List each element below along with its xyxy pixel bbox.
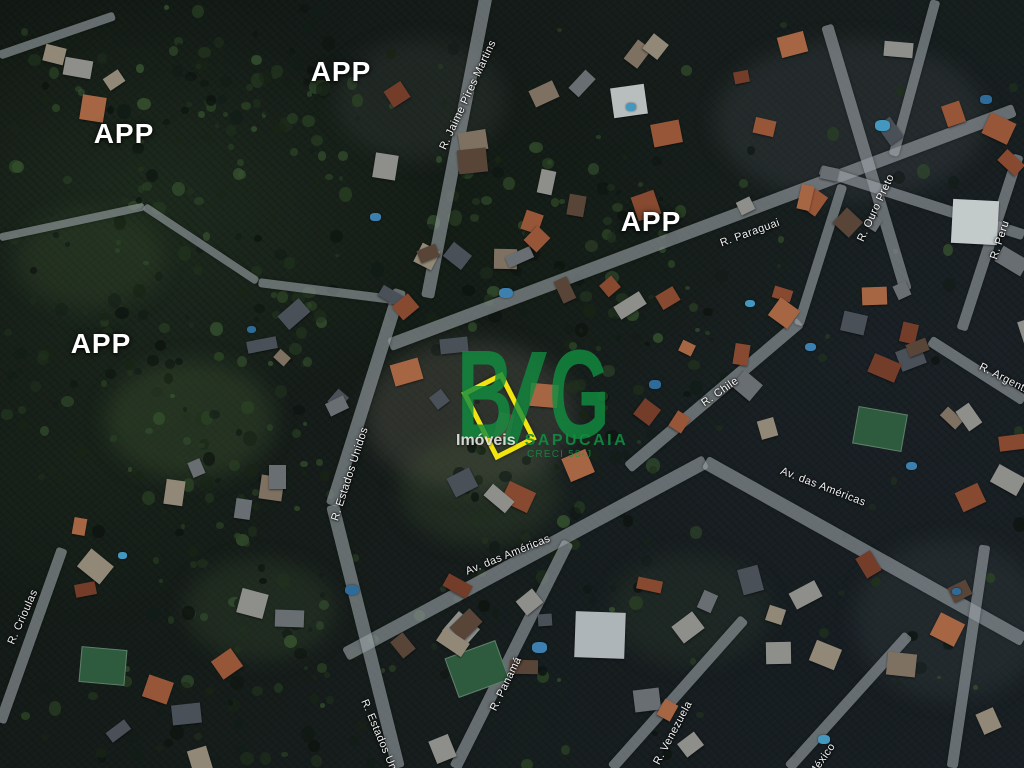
tree-decor (440, 670, 449, 679)
pool-decor (345, 585, 359, 595)
tree-decor (299, 4, 310, 13)
tree-decor (371, 262, 384, 276)
tree-decor (39, 682, 52, 694)
house-decor (372, 153, 399, 181)
tree-decor (200, 476, 213, 489)
tree-decor (631, 333, 641, 341)
area-label-app: APP (94, 118, 155, 150)
tree-decor (50, 467, 59, 474)
tree-decor (304, 666, 309, 670)
tree-decor (186, 76, 192, 81)
tree-decor (272, 123, 286, 136)
tree-decor (137, 98, 151, 110)
tree-decor (300, 461, 307, 467)
tree-decor (164, 739, 173, 747)
house-decor (439, 336, 468, 354)
tree-decor (155, 272, 163, 281)
tree-decor (436, 156, 443, 163)
tree-decor (254, 317, 259, 323)
pool-decor (980, 95, 992, 104)
court-decor (79, 646, 128, 686)
house-decor (997, 149, 1024, 176)
tree-decor (284, 56, 290, 61)
tree-decor (641, 555, 651, 567)
tree-decor (710, 338, 714, 341)
pool-decor (906, 462, 917, 470)
tree-decor (688, 360, 700, 370)
tree-decor (30, 298, 37, 304)
tree-decor (335, 254, 339, 258)
tree-decor (75, 86, 82, 92)
house-decor (809, 640, 842, 670)
tree-decor (609, 451, 622, 465)
house-decor (998, 433, 1024, 452)
tree-decor (313, 675, 317, 679)
tree-decor (159, 579, 163, 584)
tree-decor (240, 752, 254, 766)
tree-decor (780, 22, 787, 28)
tree-decor (644, 539, 650, 545)
tree-decor (338, 151, 349, 161)
tree-decor (274, 683, 283, 693)
tree-decor (605, 354, 610, 358)
tree-decor (575, 379, 585, 390)
tree-decor (281, 752, 287, 757)
tree-decor (322, 36, 335, 51)
tree-decor (156, 745, 163, 751)
tree-decor (138, 185, 145, 193)
tree-decor (170, 725, 184, 740)
tree-decor (244, 540, 250, 547)
tree-decor (339, 176, 343, 181)
tree-decor (234, 719, 243, 729)
tree-decor (230, 676, 244, 690)
tree-decor (210, 322, 223, 336)
tree-decor (12, 161, 24, 173)
house-decor (632, 687, 661, 712)
tree-decor (200, 80, 208, 87)
tree-decor (356, 721, 366, 730)
tree-decor (838, 590, 845, 597)
tree-decor (215, 478, 221, 483)
tree-decor (690, 381, 703, 395)
tree-decor (38, 474, 45, 480)
tree-decor (588, 163, 599, 175)
tree-decor (61, 396, 74, 407)
tree-decor (198, 47, 210, 58)
tree-decor (240, 626, 246, 632)
tree-decor (181, 524, 185, 529)
house-decor (443, 241, 472, 269)
tree-decor (777, 264, 781, 268)
tree-decor (169, 46, 178, 55)
tree-decor (318, 151, 326, 161)
tree-decor (557, 692, 562, 696)
tree-decor (30, 381, 41, 392)
tree-decor (747, 146, 755, 155)
tree-decor (311, 135, 323, 146)
tree-decor (284, 635, 297, 648)
tree-decor (115, 307, 129, 319)
pool-decor (875, 120, 890, 131)
house-decor (1017, 315, 1024, 344)
tree-decor (289, 343, 302, 355)
tree-decor (652, 156, 662, 165)
tree-decor (468, 322, 477, 332)
tree-decor (97, 53, 107, 64)
tree-decor (277, 291, 289, 302)
tree-decor (133, 284, 145, 298)
tree-decor (179, 682, 190, 691)
tree-decor (216, 188, 225, 199)
tree-decor (42, 82, 49, 90)
tree-decor (238, 288, 248, 298)
tree-decor (294, 506, 299, 512)
house-decor (529, 80, 560, 107)
tree-decor (4, 329, 12, 337)
tree-decor (128, 467, 133, 472)
pool-decor (626, 103, 636, 111)
tree-decor (681, 65, 692, 75)
tree-decor (214, 37, 224, 48)
tree-decor (241, 401, 255, 414)
house-decor (955, 483, 987, 513)
tree-decor (564, 324, 574, 334)
house-decor (677, 731, 704, 757)
tree-decor (366, 758, 376, 768)
tree-decor (49, 701, 61, 715)
tree-decor (308, 627, 313, 632)
tree-decor (589, 597, 597, 604)
tree-decor (187, 188, 194, 195)
tree-decor (14, 348, 27, 359)
tree-decor (170, 114, 179, 123)
tree-decor (869, 504, 876, 510)
tree-decor (431, 643, 438, 651)
tree-decor (275, 385, 287, 398)
tree-decor (559, 199, 565, 204)
tree-decor (117, 104, 131, 119)
tree-decor (825, 334, 830, 339)
tree-decor (136, 64, 143, 73)
tree-decor (52, 401, 57, 407)
tree-decor (21, 712, 31, 720)
tree-decor (245, 464, 258, 478)
tree-decor (251, 126, 257, 132)
house-decor (976, 707, 1002, 734)
tree-decor (349, 736, 358, 745)
tree-decor (480, 267, 493, 279)
tree-decor (302, 706, 308, 712)
house-decor (840, 310, 867, 335)
tree-decor (203, 232, 210, 241)
tree-decor (519, 308, 527, 317)
tree-decor (186, 102, 191, 107)
tree-decor (161, 509, 166, 515)
tree-decor (320, 471, 329, 481)
tree-decor (183, 407, 187, 412)
tree-decor (190, 561, 197, 569)
tree-decor (442, 100, 447, 105)
tree-decor (557, 678, 562, 682)
tree-decor (462, 285, 475, 296)
house-decor (956, 403, 983, 432)
tree-decor (301, 726, 314, 742)
tree-decor (616, 190, 620, 195)
tree-decor (316, 459, 323, 466)
tree-decor (194, 197, 204, 205)
court-decor (852, 406, 908, 452)
tree-decor (105, 369, 116, 379)
tree-decor (42, 95, 50, 104)
tree-decor (471, 492, 479, 502)
house-decor (171, 702, 202, 725)
tree-decor (215, 124, 220, 128)
tree-decor (168, 616, 174, 624)
tree-decor (472, 198, 480, 205)
tree-decor (389, 665, 396, 672)
tree-decor (616, 335, 621, 341)
area-label-app: APP (311, 56, 372, 88)
tree-decor (891, 477, 897, 484)
tree-decor (310, 694, 319, 704)
tree-decor (605, 430, 618, 442)
tree-decor (70, 380, 77, 388)
tree-decor (277, 573, 290, 588)
tree-decor (185, 315, 190, 319)
tree-decor (472, 516, 480, 525)
tree-decor (83, 310, 88, 316)
tree-decor (192, 5, 204, 18)
tree-decor (690, 526, 702, 539)
house-decor (72, 517, 88, 536)
tree-decor (633, 385, 644, 395)
tree-decor (172, 182, 185, 196)
tree-decor (352, 554, 359, 561)
house-decor (187, 745, 213, 768)
tree-decor (303, 422, 308, 426)
tree-decor (49, 67, 59, 79)
tree-decor (172, 65, 183, 78)
tree-decor (41, 734, 49, 741)
tree-decor (128, 739, 132, 743)
tree-decor (603, 217, 613, 225)
tree-decor (138, 310, 148, 320)
tree-decor (8, 761, 22, 768)
tree-decor (114, 215, 127, 230)
tree-decor (205, 493, 214, 503)
tree-decor (177, 43, 182, 47)
tree-decor (38, 350, 48, 360)
tree-decor (7, 371, 18, 382)
tree-decor (583, 304, 596, 318)
tree-decor (289, 48, 295, 54)
satellite-map: R. Jaime Pires MartinsR. ParaguaiR. Ouro… (0, 0, 1024, 768)
tree-decor (645, 342, 649, 346)
pool-decor (805, 343, 816, 351)
tree-decor (778, 236, 785, 243)
tree-decor (339, 187, 352, 202)
tree-decor (585, 240, 598, 252)
tree-decor (827, 127, 839, 140)
tree-decor (931, 356, 940, 365)
tree-decor (55, 303, 68, 316)
tree-decor (330, 230, 343, 243)
tree-decor (596, 346, 601, 351)
tree-decor (237, 159, 244, 166)
pool-decor (745, 300, 755, 307)
tree-decor (317, 663, 327, 673)
house-decor (732, 343, 750, 366)
tree-decor (138, 167, 143, 172)
tree-decor (320, 703, 325, 708)
house-decor (574, 611, 626, 659)
tree-decor (107, 106, 114, 115)
tree-decor (183, 437, 191, 445)
tree-decor (612, 316, 617, 322)
house-decor (650, 119, 683, 147)
tree-decor (198, 111, 205, 118)
tree-decor (115, 248, 119, 253)
tree-decor (522, 456, 532, 465)
tree-decor (478, 600, 490, 612)
tree-decor (290, 148, 298, 156)
tree-decor (57, 476, 64, 482)
tree-decor (223, 112, 228, 117)
tree-decor (986, 573, 995, 583)
house-decor (766, 642, 792, 665)
tree-decor (18, 406, 26, 413)
tree-decor (1, 409, 12, 419)
tree-decor (153, 557, 159, 564)
tree-decor (659, 197, 663, 201)
tree-decor (252, 503, 259, 510)
house-decor (529, 383, 559, 408)
tree-decor (17, 421, 29, 431)
tree-decor (583, 585, 592, 595)
tree-decor (230, 110, 243, 124)
tree-decor (580, 291, 593, 302)
tree-decor (639, 314, 647, 321)
tree-decor (819, 628, 829, 638)
tree-decor (569, 342, 577, 350)
tree-decor (188, 546, 198, 557)
tree-decor (311, 755, 322, 766)
tree-decor (482, 537, 489, 544)
tree-decor (52, 104, 60, 112)
tree-decor (77, 362, 83, 368)
tree-decor (869, 281, 875, 287)
tree-decor (554, 261, 565, 271)
house-decor (163, 479, 185, 506)
tree-decor (303, 22, 315, 35)
tree-decor (252, 686, 263, 695)
tree-decor (251, 55, 262, 65)
tree-decor (709, 419, 715, 424)
tree-decor (164, 5, 169, 10)
tree-decor (307, 91, 313, 96)
house-decor (538, 613, 553, 626)
tree-decor (235, 233, 242, 240)
house-decor (610, 84, 648, 118)
tree-decor (943, 278, 956, 292)
tree-decor (10, 123, 19, 133)
house-decor (74, 581, 97, 598)
tree-decor (156, 708, 164, 716)
tree-decor (381, 668, 386, 673)
tree-decor (228, 144, 233, 149)
pool-decor (532, 642, 547, 653)
tree-decor (145, 428, 153, 435)
tree-decor (579, 410, 589, 420)
pool-decor (952, 588, 961, 595)
tree-decor (896, 681, 901, 685)
tree-decor (554, 464, 559, 470)
tree-decor (28, 54, 41, 66)
tree-decor (584, 341, 589, 346)
tree-decor (40, 426, 48, 436)
tree-decor (638, 182, 642, 187)
house-decor (103, 69, 126, 91)
tree-decor (622, 155, 627, 160)
tree-decor (319, 573, 324, 577)
tree-decor (260, 752, 271, 765)
tree-decor (495, 156, 501, 162)
tree-decor (108, 293, 121, 308)
tree-decor (226, 125, 236, 136)
house-decor (457, 148, 488, 175)
tree-decor (529, 142, 543, 154)
tree-decor (652, 731, 658, 736)
area-label-app: APP (71, 328, 132, 360)
tree-decor (101, 380, 107, 387)
house-decor (569, 69, 596, 97)
house-decor (63, 56, 94, 78)
tree-decor (649, 466, 657, 475)
tree-decor (316, 621, 324, 630)
tree-decor (557, 28, 562, 32)
tree-decor (220, 76, 233, 86)
tree-decor (607, 232, 617, 243)
tree-decor (622, 450, 630, 459)
tree-decor (110, 435, 116, 441)
house-decor (655, 286, 681, 311)
tree-decor (287, 113, 299, 125)
tree-decor (695, 328, 700, 332)
tree-decor (302, 115, 315, 127)
tree-decor (302, 470, 307, 476)
tree-decor (271, 65, 283, 78)
tree-decor (254, 304, 265, 314)
tree-decor (1013, 517, 1024, 532)
tree-decor (314, 310, 327, 323)
tree-decor (163, 119, 170, 126)
tree-decor (203, 134, 212, 143)
tree-decor (607, 184, 615, 190)
tree-decor (293, 405, 305, 414)
pool-decor (649, 380, 661, 389)
tree-decor (309, 148, 315, 153)
tree-decor (237, 356, 247, 367)
tree-decor (355, 116, 360, 121)
tree-decor (846, 380, 850, 384)
house-decor (886, 652, 917, 678)
tree-decor (214, 315, 221, 321)
tree-decor (601, 405, 608, 411)
house-decor (861, 286, 886, 305)
tree-decor (475, 447, 481, 453)
tree-decor (205, 687, 214, 695)
